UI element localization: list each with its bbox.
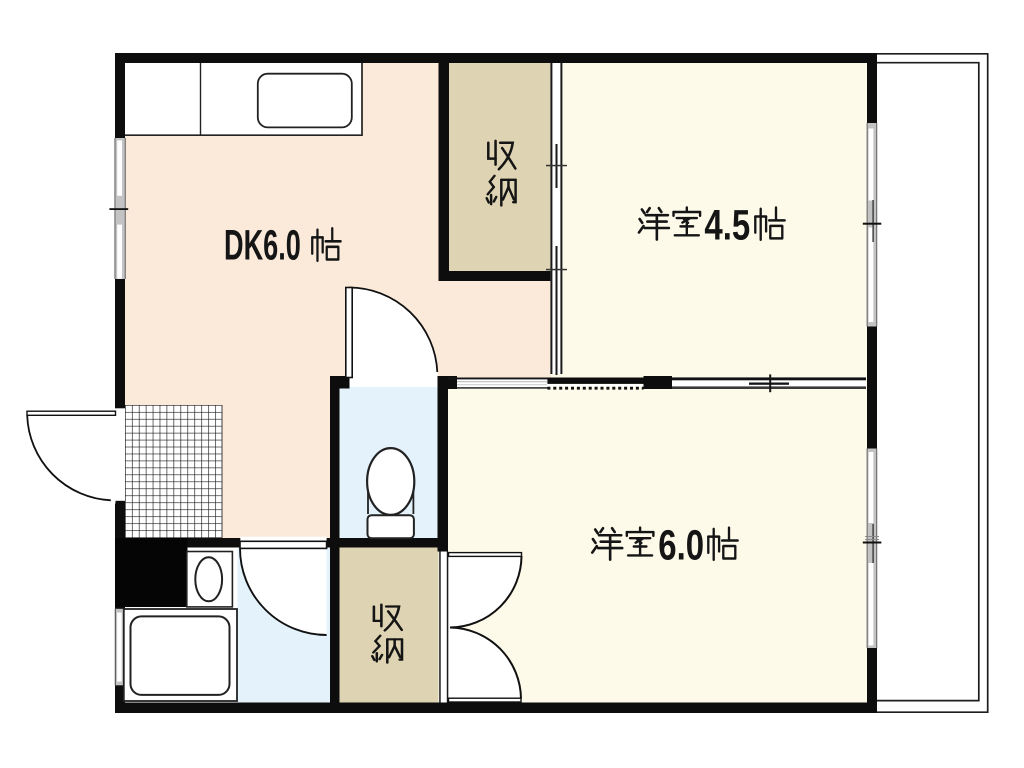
svg-text:4.5: 4.5 (704, 202, 750, 250)
svg-text:DK6.0: DK6.0 (224, 222, 301, 269)
svg-text:6.0: 6.0 (658, 522, 704, 570)
